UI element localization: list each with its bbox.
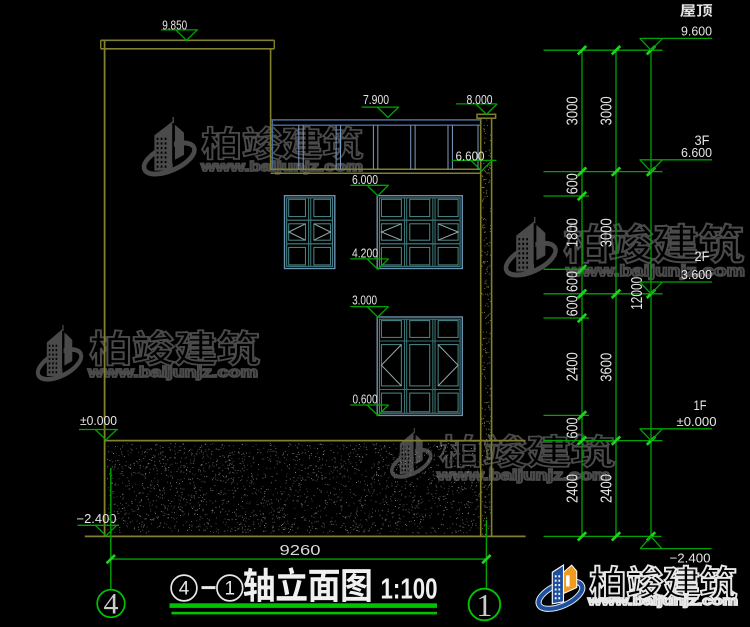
- svg-text:8.000: 8.000: [467, 93, 493, 107]
- svg-text:2400: 2400: [599, 474, 616, 503]
- svg-text:1: 1: [225, 579, 236, 600]
- svg-text:2400: 2400: [565, 474, 582, 503]
- svg-text:±0.000: ±0.000: [677, 414, 717, 429]
- svg-text:3.600: 3.600: [681, 267, 712, 282]
- svg-text:9260: 9260: [280, 543, 321, 559]
- svg-text:±0.000: ±0.000: [80, 414, 117, 428]
- svg-text:www.baijunjz.com: www.baijunjz.com: [87, 365, 258, 381]
- svg-text:9.850: 9.850: [162, 19, 187, 33]
- svg-text:www.baijunjz.com: www.baijunjz.com: [200, 158, 363, 174]
- svg-text:1: 1: [476, 587, 492, 623]
- svg-text:2400: 2400: [565, 352, 582, 381]
- svg-text:6.000: 6.000: [352, 173, 378, 187]
- svg-text:6.600: 6.600: [681, 145, 712, 160]
- svg-text:4: 4: [179, 579, 190, 600]
- svg-text:600: 600: [565, 295, 582, 316]
- svg-text:3600: 3600: [599, 352, 616, 381]
- svg-text:600: 600: [565, 271, 582, 292]
- svg-text:www.baijunjz.com: www.baijunjz.com: [587, 593, 738, 608]
- svg-text:3.000: 3.000: [352, 294, 377, 308]
- svg-text:4.200: 4.200: [352, 246, 378, 260]
- svg-text:www.baijunjz.com: www.baijunjz.com: [565, 263, 745, 280]
- svg-text:3000: 3000: [599, 96, 616, 125]
- svg-text:9.600: 9.600: [681, 23, 712, 38]
- svg-text:1:100: 1:100: [381, 574, 438, 606]
- svg-text:www.baijunjz.com: www.baijunjz.com: [436, 468, 610, 484]
- svg-text:600: 600: [565, 173, 582, 194]
- svg-text:7.900: 7.900: [363, 93, 389, 107]
- svg-text:6.600: 6.600: [456, 150, 485, 164]
- svg-text:3000: 3000: [599, 218, 616, 247]
- svg-text:3000: 3000: [565, 96, 582, 125]
- svg-text:−2.400: −2.400: [670, 551, 711, 566]
- svg-text:600: 600: [565, 417, 582, 438]
- svg-text:2F: 2F: [695, 249, 710, 264]
- svg-text:0.600: 0.600: [353, 392, 378, 406]
- svg-text:1F: 1F: [694, 398, 707, 413]
- svg-text:1800: 1800: [565, 218, 582, 247]
- svg-text:4: 4: [104, 588, 119, 621]
